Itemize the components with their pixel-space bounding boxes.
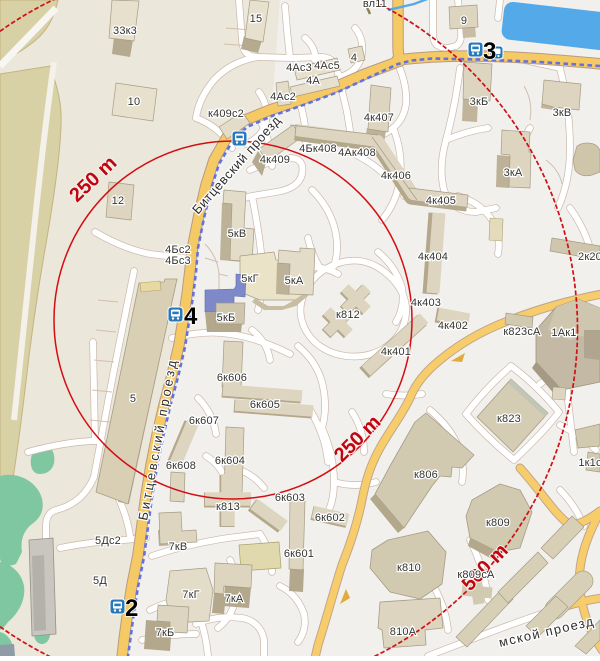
svg-text:5кА: 5кА (285, 275, 304, 287)
svg-text:4Бс3: 4Бс3 (165, 255, 191, 267)
svg-text:5Дс2: 5Дс2 (95, 535, 121, 547)
svg-text:5кВ: 5кВ (228, 228, 247, 240)
svg-text:4А: 4А (306, 75, 320, 87)
svg-text:4Ас5: 4Ас5 (314, 60, 340, 72)
svg-text:33к3: 33к3 (113, 25, 137, 37)
svg-text:6к606: 6к606 (217, 372, 247, 384)
svg-text:4к407: 4к407 (364, 112, 394, 124)
svg-text:6к601: 6к601 (284, 548, 314, 560)
svg-text:к813: к813 (216, 501, 240, 513)
svg-text:3кБ: 3кБ (470, 96, 489, 108)
svg-text:к809сА: к809сА (457, 569, 495, 581)
svg-text:7кБ: 7кБ (156, 627, 175, 639)
svg-text:4к406: 4к406 (381, 170, 411, 182)
svg-text:4к409: 4к409 (260, 154, 290, 166)
svg-text:к810: к810 (397, 562, 421, 574)
svg-text:к806: к806 (414, 469, 438, 481)
svg-text:4Ас2: 4Ас2 (270, 91, 296, 103)
svg-text:7кА: 7кА (225, 593, 244, 605)
svg-text:6к605: 6к605 (250, 399, 280, 411)
svg-text:4к402: 4к402 (438, 320, 468, 332)
svg-text:5Д: 5Д (93, 575, 107, 587)
svg-text:5кГ: 5кГ (241, 273, 259, 285)
svg-text:1к1с: 1к1с (578, 457, 600, 469)
svg-text:12: 12 (112, 195, 125, 207)
svg-text:10: 10 (128, 96, 141, 108)
svg-text:7кВ: 7кВ (169, 541, 188, 553)
svg-text:4Бк408: 4Бк408 (299, 143, 337, 155)
svg-text:к823сА: к823сА (503, 326, 541, 338)
svg-text:5кБ: 5кБ (217, 312, 236, 324)
svg-text:4Ак408: 4Ак408 (338, 147, 376, 159)
svg-text:3кА: 3кА (504, 167, 523, 179)
svg-text:3: 3 (483, 38, 496, 65)
svg-text:4к403: 4к403 (411, 297, 441, 309)
svg-text:4: 4 (351, 52, 357, 64)
svg-text:4Ас3: 4Ас3 (286, 62, 312, 74)
svg-text:6к604: 6к604 (215, 455, 245, 467)
svg-text:5: 5 (130, 393, 136, 405)
svg-text:вл11: вл11 (363, 0, 387, 10)
svg-text:810А: 810А (390, 626, 417, 638)
svg-text:6к608: 6к608 (166, 460, 196, 472)
svg-text:9: 9 (461, 15, 467, 27)
svg-text:4к404: 4к404 (418, 251, 448, 263)
svg-text:2: 2 (125, 595, 138, 622)
svg-text:4к401: 4к401 (381, 346, 411, 358)
svg-text:6к602: 6к602 (315, 512, 345, 524)
svg-text:к823: к823 (497, 413, 521, 425)
svg-text:4: 4 (184, 303, 198, 330)
svg-text:15: 15 (250, 13, 263, 25)
svg-text:к809: к809 (486, 517, 510, 529)
svg-text:к409с2: к409с2 (208, 108, 244, 120)
svg-text:4к405: 4к405 (426, 195, 456, 207)
svg-text:6к603: 6к603 (275, 492, 305, 504)
svg-text:1Ак1: 1Ак1 (551, 327, 576, 339)
svg-text:6к607: 6к607 (189, 415, 219, 427)
svg-text:к812: к812 (336, 309, 360, 321)
svg-text:7кГ: 7кГ (182, 589, 200, 601)
svg-text:3кВ: 3кВ (553, 107, 572, 119)
svg-text:2к20: 2к20 (578, 251, 600, 263)
